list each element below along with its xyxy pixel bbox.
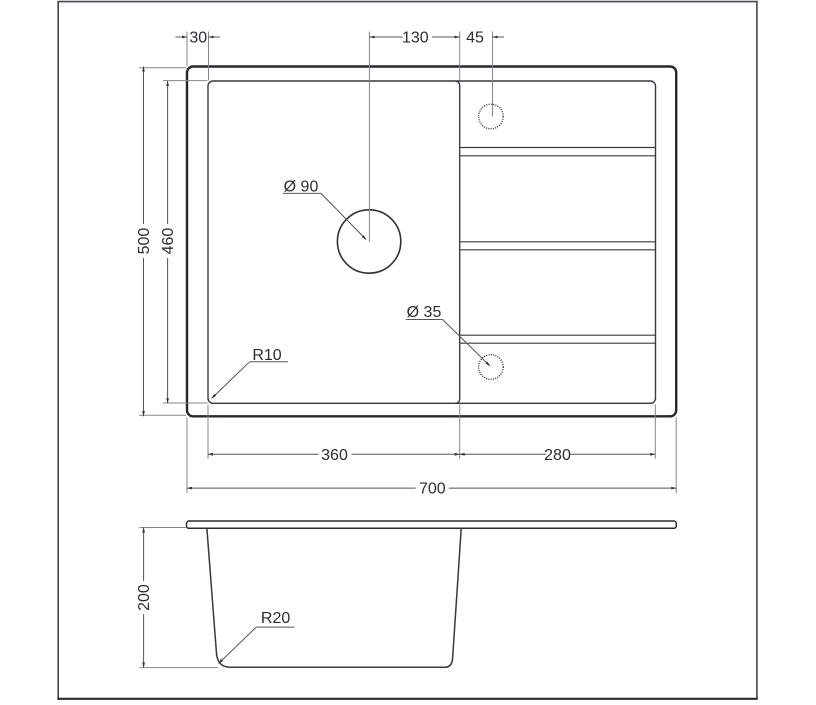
svg-text:R20: R20 [261,610,290,627]
svg-text:130: 130 [402,30,429,47]
svg-text:360: 360 [321,447,348,464]
svg-text:280: 280 [544,447,571,464]
svg-text:Ø 90: Ø 90 [284,178,319,195]
svg-text:200: 200 [136,584,153,611]
svg-text:500: 500 [136,228,153,255]
svg-text:45: 45 [466,30,484,47]
svg-text:700: 700 [419,481,446,498]
svg-text:30: 30 [189,30,207,47]
svg-text:R10: R10 [252,347,281,364]
svg-text:Ø 35: Ø 35 [407,304,442,321]
svg-text:460: 460 [160,228,177,255]
